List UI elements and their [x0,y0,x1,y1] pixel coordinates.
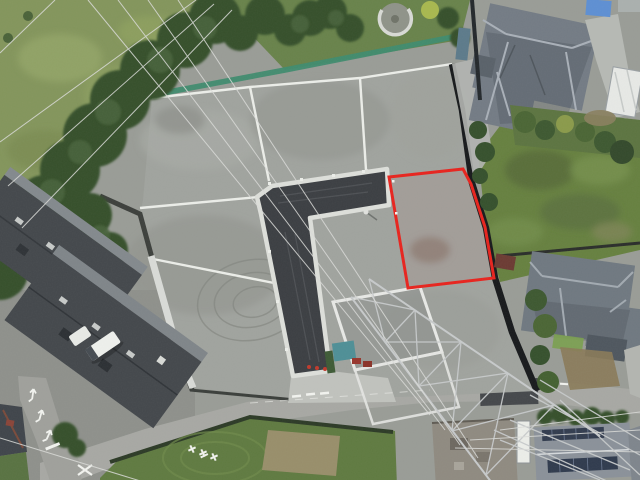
aerial-photo [0,0,640,480]
aerial-photo-canvas [0,0,640,480]
photo-grain [0,0,640,480]
